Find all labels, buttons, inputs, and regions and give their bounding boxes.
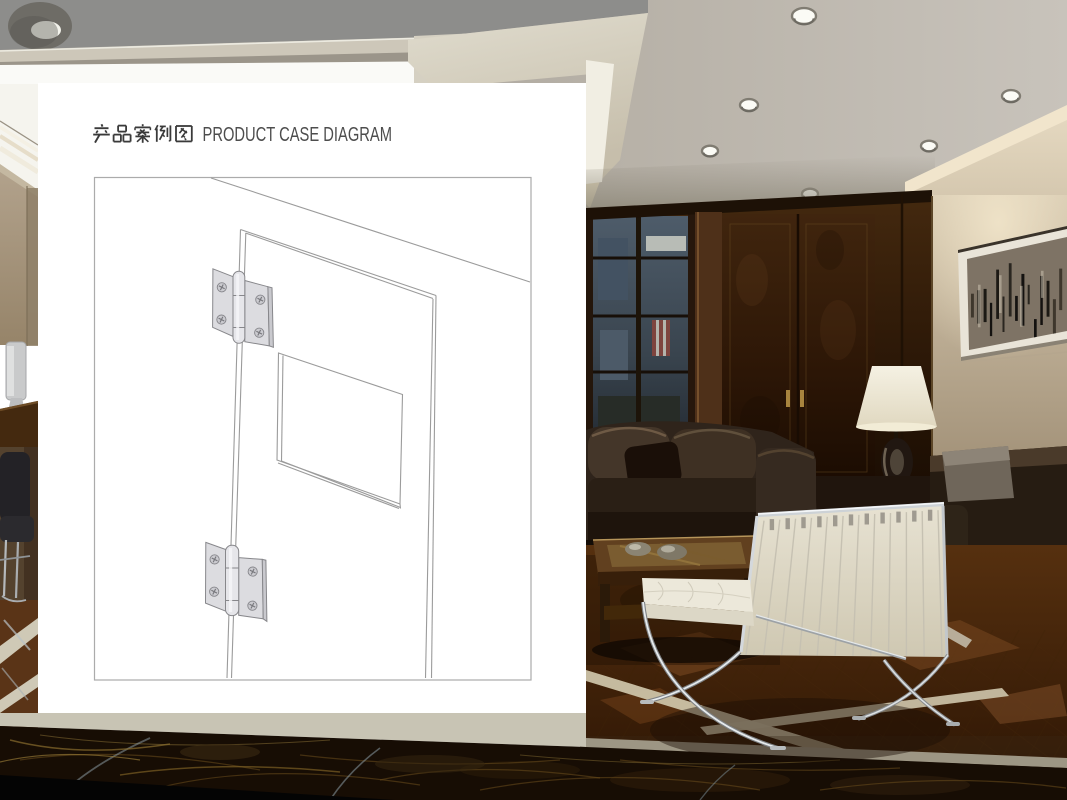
svg-text:PRODUCT CASE DIAGRAM: PRODUCT CASE DIAGRAM [203,123,393,146]
